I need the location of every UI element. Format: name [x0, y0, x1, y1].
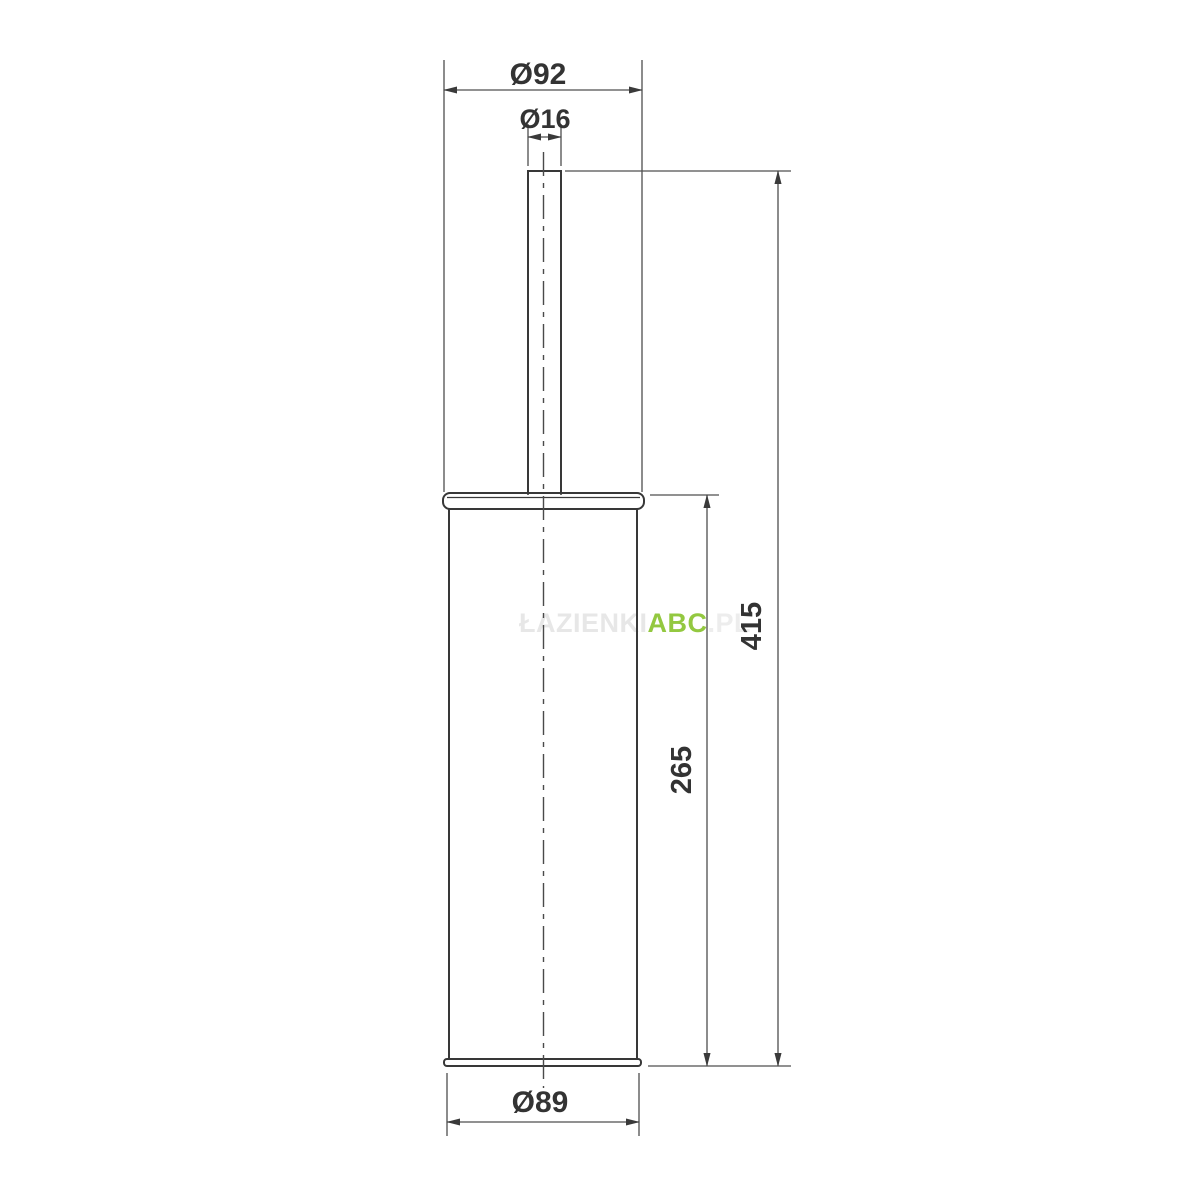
dim-label-top-diameter: Ø92 — [510, 58, 567, 91]
drawing-page: ŁAZIENKIABC.PL Ø92 — [0, 0, 1200, 1200]
dim-handle-diameter: Ø16 — [519, 104, 570, 166]
dim-total-height: 415 — [565, 171, 791, 1066]
dim-label-bottom-diameter: Ø89 — [512, 1086, 569, 1119]
handle-outline — [528, 171, 561, 494]
dim-body-height: 265 — [650, 495, 719, 1066]
base-outline — [444, 1059, 641, 1066]
dim-bottom-diameter: Ø89 — [447, 1073, 639, 1136]
dim-label-total-height: 415 — [736, 602, 768, 650]
technical-drawing-svg: Ø92 Ø16 415 265 Ø89 — [0, 0, 1200, 1200]
dim-label-body-height: 265 — [666, 746, 698, 794]
dim-label-handle-diameter: Ø16 — [519, 104, 570, 134]
